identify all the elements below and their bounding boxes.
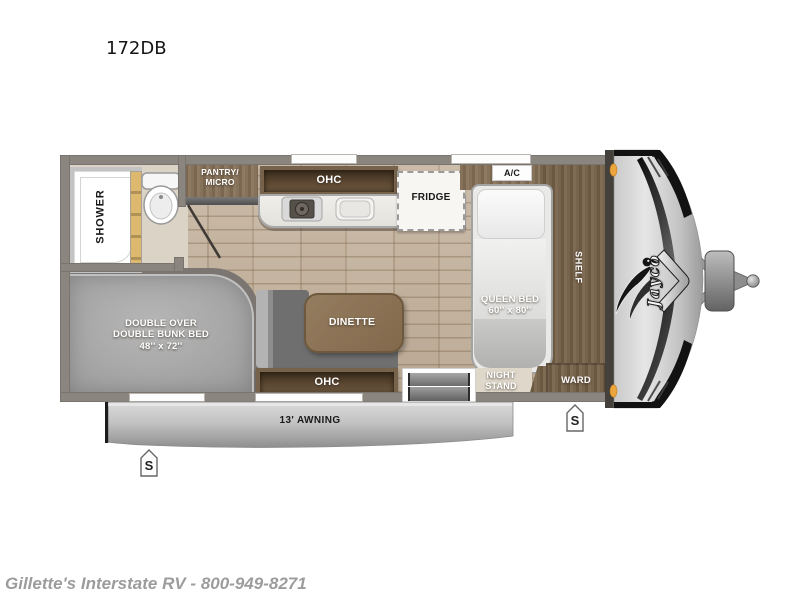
wall-left: [60, 155, 70, 402]
dinette-seat-left: [256, 290, 309, 368]
kitchen-ohc-cabinet: OHC: [260, 166, 398, 196]
shower-label: SHOWER: [94, 182, 107, 252]
awning-label: 13' AWNING: [245, 415, 375, 427]
entry-step-1: [408, 373, 470, 386]
wall-bathroom-bottom: [60, 263, 178, 272]
dealer-watermark: Gillette's Interstate RV - 800-949-8271: [5, 574, 307, 594]
fridge-label: FRIDGE: [397, 192, 465, 204]
wall-right: [605, 150, 614, 408]
pantry-label: PANTRY/ MICRO: [182, 167, 258, 187]
clearance-light-bottom: [610, 385, 617, 397]
stabilizer-marker-left: S: [139, 449, 159, 477]
awning: [100, 398, 520, 456]
sink-icon: [335, 197, 375, 221]
shelf-label: SHELF: [573, 246, 584, 288]
front-cap: [598, 143, 763, 413]
floorplan-page: 172DB DOUBLE OVER DOUBLE BUNK BED 48'' x…: [0, 0, 800, 600]
kitchen-ohc-label: OHC: [316, 174, 341, 187]
window-top-bedroom: [452, 155, 530, 163]
wall-bathroom-right: [178, 155, 186, 207]
window-top-kitchen: [292, 155, 356, 163]
svg-text:S: S: [145, 458, 154, 473]
stabilizer-marker-right: S: [565, 404, 585, 432]
floorplan-figure[interactable]: DOUBLE OVER DOUBLE BUNK BED 48'' x 72'' …: [0, 0, 800, 600]
queen-bed: [471, 184, 553, 374]
jayco-logo: Jayco: [644, 241, 668, 321]
wall-door-stub: [174, 257, 184, 272]
hitch-ball: [747, 275, 759, 287]
queen-bed-label: QUEEN BED 60'' x 80'': [471, 294, 549, 317]
clearance-light-top: [610, 164, 617, 176]
svg-text:S: S: [571, 413, 580, 428]
dinette-label: DINETTE: [304, 316, 400, 329]
door-swing-icon: [184, 200, 230, 264]
queen-bed-foot: [474, 319, 546, 368]
wardrobe-label: WARD: [546, 375, 606, 386]
ac-label: A/C: [493, 168, 531, 179]
living-ohc-label: OHC: [314, 376, 339, 389]
queen-bed-pillow: [477, 189, 545, 239]
bunk-bed-label: DOUBLE OVER DOUBLE BUNK BED 48'' x 72'': [70, 318, 252, 352]
stove-icon: [281, 196, 323, 222]
night-stand-label: NIGHT STAND: [468, 370, 534, 392]
propane-cover: [705, 251, 734, 311]
